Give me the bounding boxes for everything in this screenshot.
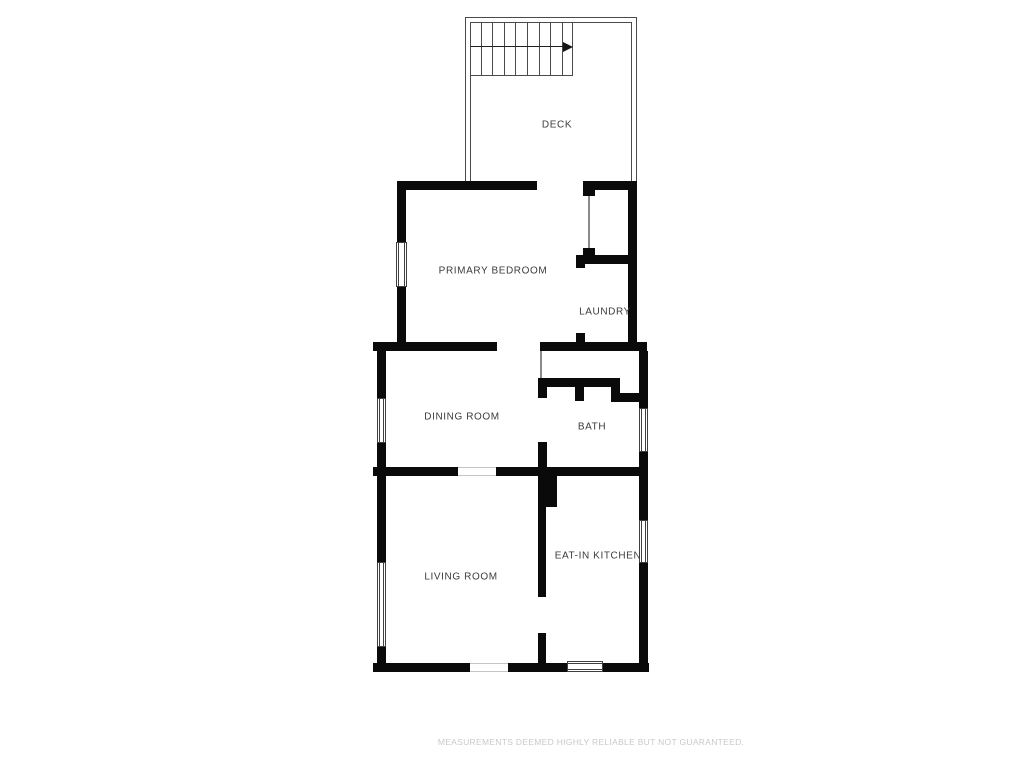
wall [373, 342, 497, 351]
wall [603, 663, 649, 672]
wall [538, 387, 547, 398]
wall [538, 507, 546, 597]
wall [576, 333, 585, 342]
room-label-bath: BATH [578, 422, 606, 433]
hall-line [540, 351, 542, 378]
room-label-deck: DECK [542, 120, 572, 131]
wall [373, 663, 470, 672]
opening-edge [470, 671, 508, 672]
wall [538, 378, 620, 387]
disclaimer-text: MEASUREMENTS DEEMED HIGHLY RELIABLE BUT … [438, 737, 744, 747]
wall [575, 387, 584, 401]
floor-plan: DECK PRIMARY BEDROOM LAUNDRY DINING ROOM… [0, 0, 1024, 768]
stair-tread [504, 22, 505, 76]
stair-tread [481, 22, 482, 76]
opening-edge [458, 475, 496, 476]
wall [373, 467, 458, 476]
wall [639, 452, 648, 467]
window-symbol-bedroom-left [396, 242, 407, 287]
wall [628, 190, 637, 342]
room-label-primary-bedroom: PRIMARY BEDROOM [439, 266, 548, 277]
window-symbol-dining-left [377, 398, 386, 443]
opening-edge [470, 663, 508, 664]
window-pane [568, 663, 602, 670]
wall [377, 351, 386, 398]
closet-line [588, 196, 590, 248]
room-label-dining-room: DINING ROOM [424, 412, 500, 423]
room-label-eat-in-kitchen: EAT-IN KITCHEN [555, 551, 642, 562]
wall [576, 255, 585, 268]
window-pane [379, 563, 384, 646]
wall [540, 342, 647, 351]
room-label-living-room: LIVING ROOM [424, 572, 497, 583]
staircase [470, 22, 573, 76]
wall [397, 190, 406, 242]
wall [377, 476, 386, 562]
chimney-block [538, 476, 557, 507]
wall [583, 248, 595, 255]
stair-tread [492, 22, 493, 76]
wall [538, 442, 547, 467]
arrow-right-icon [563, 42, 573, 52]
stair-tread [515, 22, 516, 76]
opening-edge [458, 467, 496, 468]
wall [583, 181, 637, 190]
wall [639, 563, 648, 672]
window-pane [641, 409, 646, 451]
stair-tread [550, 22, 551, 76]
wall [496, 467, 648, 476]
room-label-laundry: LAUNDRY [579, 307, 631, 318]
window-symbol-bath-right [639, 408, 648, 452]
stair-direction-line [471, 46, 564, 47]
stair-tread [539, 22, 540, 76]
wall [397, 287, 406, 342]
wall [611, 393, 648, 402]
wall [397, 181, 537, 190]
window-pane [641, 521, 646, 562]
wall [639, 476, 648, 520]
wall [377, 443, 386, 467]
window-symbol-living-left [377, 562, 386, 647]
window-pane [398, 243, 405, 286]
window-symbol-kitchen-bottom [567, 661, 603, 672]
window-pane [379, 399, 384, 442]
stair-tread [527, 22, 528, 76]
wall [508, 663, 567, 672]
